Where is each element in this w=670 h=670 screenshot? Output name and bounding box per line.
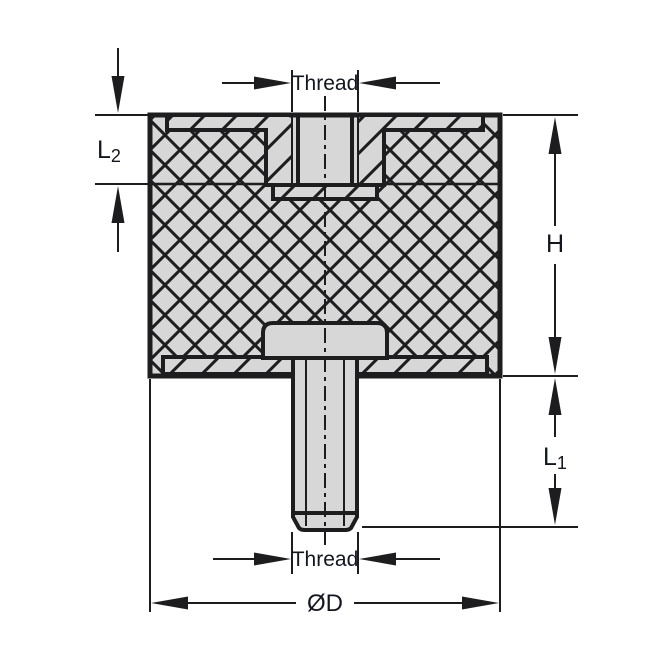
diameter-label: ØD [307, 590, 343, 617]
bottom-thread-label: Thread [292, 548, 359, 571]
label-subscript: 1 [557, 453, 567, 473]
height-label: H [546, 230, 564, 258]
technical-drawing: Thread L2 H L1 [0, 0, 670, 670]
label-main: L [97, 136, 111, 164]
label-main: L [543, 443, 557, 471]
top-thread-label: Thread [292, 72, 359, 95]
label-subscript: 2 [111, 146, 121, 166]
